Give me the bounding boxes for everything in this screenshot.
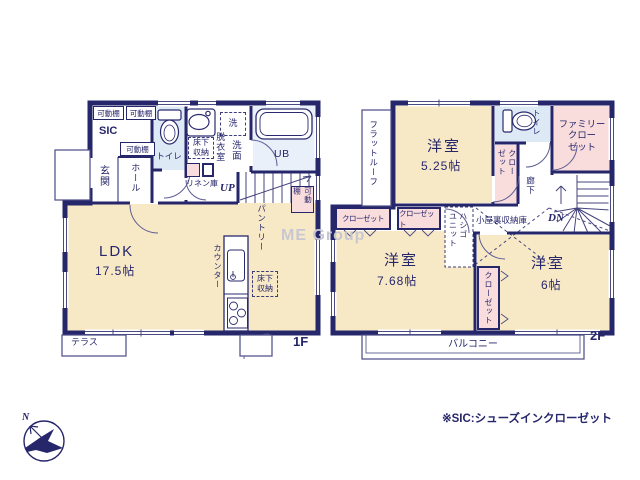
- room-label-525: 洋室: [427, 138, 461, 157]
- attic-storage-label: 小屋裏収納庫: [476, 215, 527, 226]
- room-label-6jo: 洋室: [531, 255, 565, 274]
- stairs-dn-label: DN: [548, 212, 564, 226]
- room-label-toilet-2f: トイレ: [531, 109, 541, 136]
- room-label-linen: リネン庫: [186, 179, 218, 189]
- entrance-porch: [55, 150, 90, 200]
- shelf-label: 可動棚: [292, 187, 314, 212]
- terrace-label: テラス: [71, 337, 98, 348]
- underfloor-storage-box-1: 床下 収納: [188, 137, 214, 159]
- linen-cabinet-box: [186, 163, 200, 177]
- corridor-label: 廊下: [525, 176, 536, 195]
- closet-label: クローゼット: [483, 271, 494, 325]
- linen-side-box: [202, 163, 214, 177]
- compass-north-label: N: [22, 412, 29, 425]
- washbasin-icon: [187, 109, 215, 136]
- room-label-entrance: 玄関: [96, 165, 109, 187]
- room-label-sic: SIC: [99, 125, 117, 139]
- kitchen-counter: [224, 236, 248, 331]
- closet-label: クローゼット: [399, 208, 439, 230]
- closet-label: クローゼット: [342, 213, 384, 224]
- compass: [24, 421, 64, 461]
- room-label-toilet-1f: トイレ: [152, 151, 186, 162]
- shelf-box-1: 可動棚: [93, 106, 124, 120]
- kitchen-counter-label: カウンター: [212, 244, 222, 289]
- underfloor-storage-label: 床下 収納: [189, 138, 213, 158]
- backdoor-porch: [240, 335, 272, 356]
- kitchen-sink-icon: [228, 250, 245, 281]
- room-label-hall: ホール: [129, 163, 140, 193]
- shelf-box-2: 可動棚: [126, 106, 156, 120]
- stove-icon: [228, 298, 248, 328]
- washer-label: 洗: [228, 118, 237, 129]
- closet-small-label: クロー ゼット: [496, 149, 517, 176]
- closet-box-b: クローゼット: [397, 207, 441, 230]
- closet-box-6jo: クローゼット: [477, 266, 500, 330]
- room-size-525: 5.25帖: [421, 159, 461, 174]
- shelf-box-3: 可動棚: [120, 142, 155, 156]
- underfloor-storage-label: 床下 収納: [253, 274, 277, 294]
- sic-footnote: ※SIC:シューズインクローゼット: [408, 410, 612, 426]
- balcony-label: バルコニー: [362, 339, 584, 352]
- family-closet-label: ファミリー クロー ゼット: [553, 110, 611, 162]
- flat-roof-label: フラットルーフ: [368, 120, 379, 187]
- underfloor-storage-box-2: 床下 収納: [252, 271, 278, 297]
- shelf-label: 可動棚: [126, 144, 149, 155]
- watermark: ME Group: [281, 227, 365, 245]
- shelf-label: 可動棚: [97, 108, 120, 119]
- toilet-icon-1f: [158, 110, 181, 144]
- floor-label-1f: 1F: [293, 334, 308, 350]
- room-label-bath: UB: [274, 148, 290, 161]
- room-label-washroom: 洗面: [229, 140, 241, 161]
- room-size-ldk: 17.5帖: [95, 264, 135, 279]
- stairs-up-label: UP: [220, 182, 235, 196]
- ladder-unit-label: ハシゴ ユニット: [447, 212, 468, 248]
- shelf-label: 可動棚: [130, 108, 153, 119]
- floor-label-2f: 2F: [590, 328, 605, 344]
- room-size-6jo: 6帖: [541, 278, 562, 293]
- floorplan-page: 可動棚 可動棚 可動棚 可動棚 クローゼット クローゼット クローゼット 床下 …: [0, 0, 640, 480]
- room-label-pantry: パントリー: [256, 204, 267, 252]
- room-label-768: 洋室: [384, 252, 418, 271]
- room-label-ldk: LDK: [99, 243, 134, 262]
- bathtub-icon: [256, 109, 312, 139]
- room-size-768: 7.68帖: [377, 274, 417, 289]
- shelf-box-pantry: 可動棚: [291, 186, 314, 213]
- room-label-dressing: 脱衣室: [214, 132, 225, 162]
